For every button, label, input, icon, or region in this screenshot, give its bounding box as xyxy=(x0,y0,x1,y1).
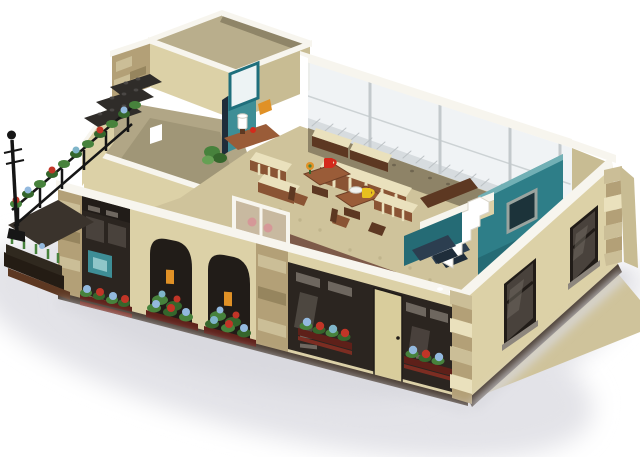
glass-corner-post xyxy=(300,55,308,130)
corner-quoins-front xyxy=(450,290,472,404)
door-handle xyxy=(396,336,400,340)
cap-stud xyxy=(437,287,443,291)
red-item xyxy=(250,127,256,133)
corner-quoins-back xyxy=(604,166,622,266)
back-wall-sliver xyxy=(620,166,638,268)
stone-pillar-mid xyxy=(256,239,288,355)
render-canvas xyxy=(0,0,640,457)
white-plate xyxy=(350,187,363,193)
lego-building-render xyxy=(0,0,640,457)
